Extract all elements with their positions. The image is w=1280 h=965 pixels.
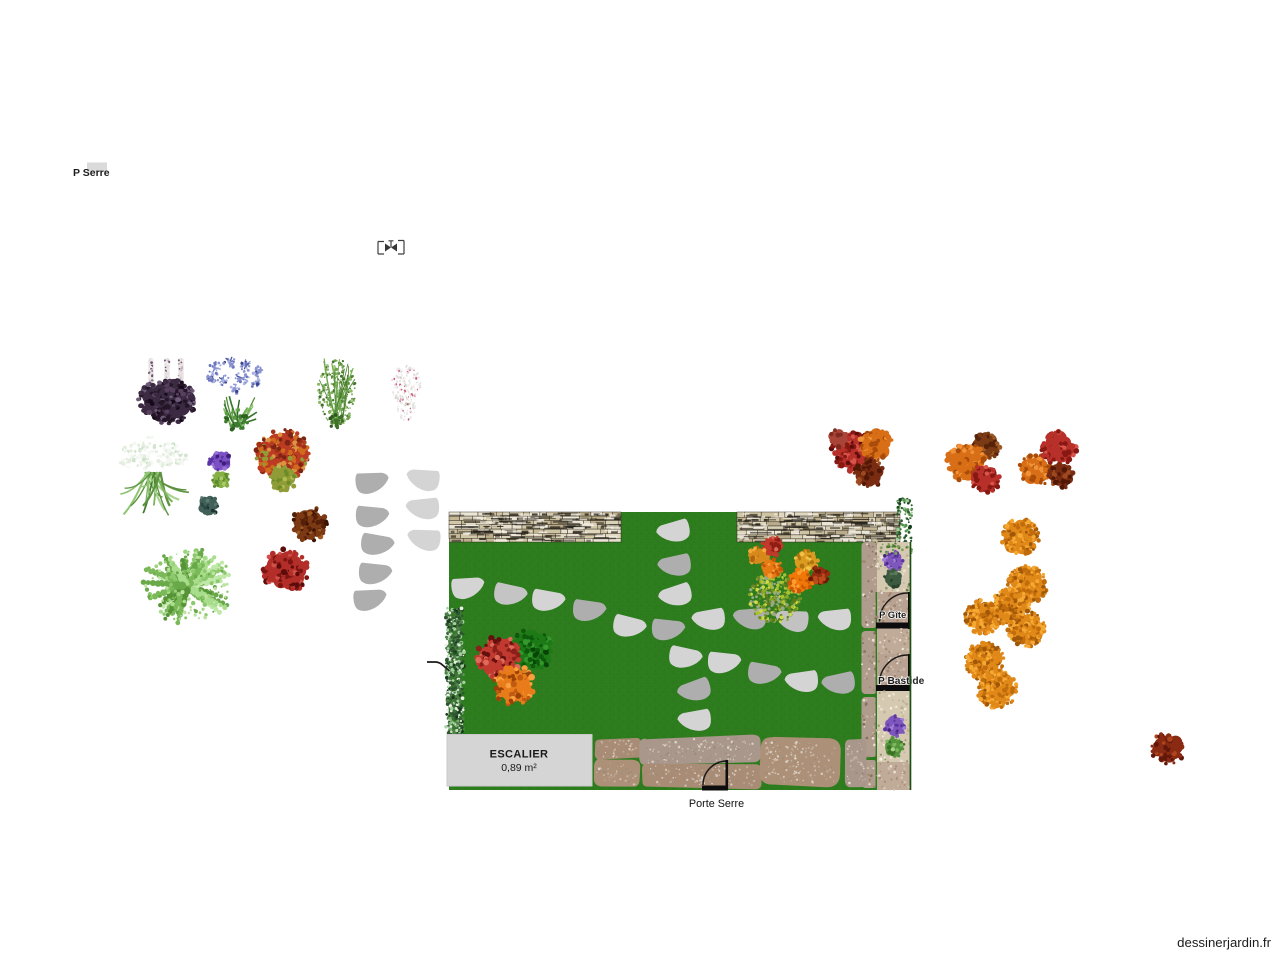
svg-text:0,89 m²: 0,89 m²	[501, 762, 537, 774]
svg-text:P Gîte: P Gîte	[879, 610, 906, 621]
svg-text:P Serre: P Serre	[73, 167, 110, 179]
svg-text:ESCALIER: ESCALIER	[490, 749, 549, 761]
svg-text:P Bastide: P Bastide	[878, 676, 925, 687]
